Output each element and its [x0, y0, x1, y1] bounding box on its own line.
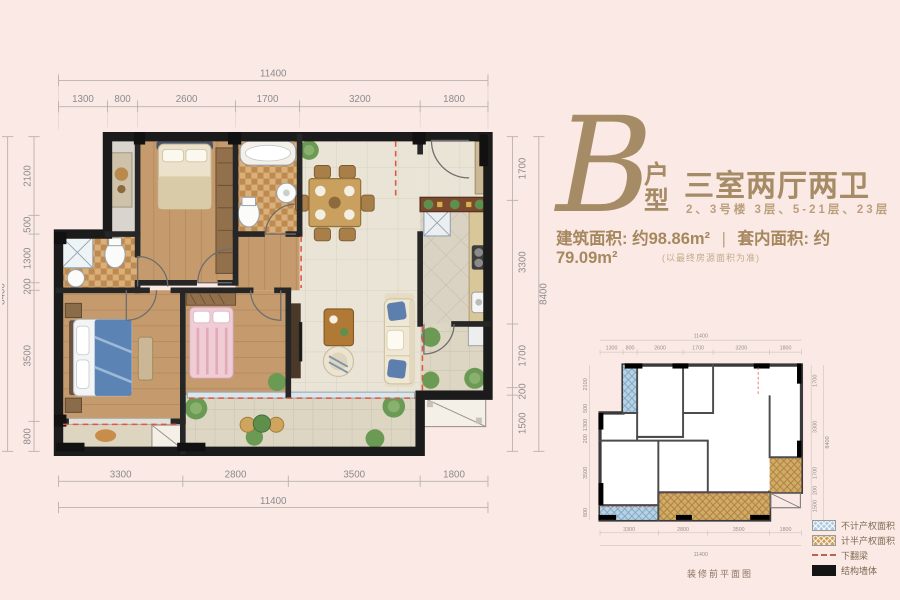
legend-label: 不计产权面积	[841, 519, 895, 532]
svg-text:1800: 1800	[780, 345, 792, 351]
legend-item: 不计产权面积	[812, 519, 898, 531]
blue-hatch-swatch	[812, 520, 836, 531]
inner-area-label: 套内面积:	[738, 230, 810, 248]
floor-plan-poster: 11400 1300 800 2600 1700 3200 1800 3300 …	[0, 0, 900, 600]
svg-text:200: 200	[813, 486, 819, 495]
dim-label: 11400	[260, 69, 287, 80]
dim-label: 1500	[518, 412, 529, 434]
dim-label: 3500	[23, 344, 34, 366]
mini-ac-platform	[771, 493, 801, 507]
room-corridor	[236, 234, 300, 290]
svg-text:1700: 1700	[692, 345, 704, 351]
legend-item: 计半产权面积	[812, 534, 898, 546]
dim-label: 200	[23, 278, 34, 295]
dim-label: 1700	[257, 94, 279, 105]
dim-label: 11400	[260, 496, 287, 507]
plan-type-label: 户型	[644, 162, 671, 215]
bedroom3-bed	[187, 293, 236, 378]
balcony-decor	[95, 429, 116, 442]
dim-label: 3200	[349, 94, 371, 105]
svg-text:1700: 1700	[813, 375, 819, 387]
svg-text:8400: 8400	[825, 436, 831, 448]
svg-text:11400: 11400	[694, 552, 708, 558]
mini-floor-plan: 11400 1300 800 2600 1700 3200 1800 3300 …	[570, 330, 835, 566]
svg-text:3300: 3300	[623, 527, 635, 533]
mini-plan-caption: 装修前平面图	[630, 567, 810, 580]
svg-text:800: 800	[583, 508, 589, 517]
legend-item: 结构墙体	[812, 564, 898, 576]
balcony-window-wall	[64, 418, 175, 424]
dim-label: 8400	[2, 283, 8, 305]
solid-black-swatch	[812, 565, 836, 576]
svg-text:3500: 3500	[583, 467, 589, 479]
plan-letter: B	[556, 100, 653, 232]
built-area-value: 约98.86m²	[632, 230, 710, 248]
legend-label: 计半产权面积	[841, 534, 895, 547]
dim-label: 800	[114, 94, 131, 105]
svg-text:500: 500	[583, 404, 589, 413]
svg-text:200: 200	[583, 434, 589, 443]
dim-label: 3300	[518, 251, 529, 273]
legend-label: 结构墙体	[841, 564, 877, 577]
svg-text:3500: 3500	[733, 527, 745, 533]
cloak-dresser	[111, 153, 132, 207]
dim-label: 1700	[518, 157, 529, 179]
balcony-sliding-door	[187, 392, 414, 398]
dim-label: 1300	[72, 94, 94, 105]
dim-label: 8400	[538, 283, 549, 305]
dim-label: 11400	[694, 333, 708, 339]
dim-label: 1300	[23, 247, 34, 269]
dim-label: 2100	[23, 165, 34, 187]
legend-label: 下翻梁	[841, 549, 868, 562]
svg-text:1700: 1700	[813, 467, 819, 479]
bedroom2-wardrobe	[216, 148, 234, 273]
svg-text:2600: 2600	[654, 345, 666, 351]
dim-label: 2600	[176, 94, 198, 105]
ac-platform-right	[422, 397, 485, 426]
legend-item: 下翻梁	[812, 549, 898, 561]
svg-text:2100: 2100	[583, 378, 589, 390]
svg-text:1500: 1500	[813, 500, 819, 512]
dim-label: 3300	[110, 470, 132, 481]
svg-text:1300: 1300	[606, 345, 618, 351]
bedroom2-bed	[156, 141, 213, 209]
legend: 不计产权面积 计半产权面积 下翻梁 结构墙体	[812, 519, 898, 579]
dim-label: 3500	[343, 470, 365, 481]
svg-text:1300: 1300	[583, 419, 589, 431]
svg-text:1800: 1800	[780, 527, 792, 533]
dim-label: 1800	[443, 94, 465, 105]
area-note: (以最终房源面积为准)	[556, 251, 866, 264]
building-floors-subtitle: 2、3号楼 3层、5-21层、23层	[686, 201, 890, 217]
dashed-line-swatch	[812, 554, 836, 556]
built-area-label: 建筑面积:	[556, 230, 628, 248]
dim-label: 800	[23, 428, 34, 445]
svg-text:2800: 2800	[677, 527, 689, 533]
dim-label: 1800	[443, 470, 465, 481]
dim-label: 500	[23, 216, 34, 233]
svg-text:3300: 3300	[813, 421, 819, 433]
plant	[268, 373, 286, 391]
svg-text:3200: 3200	[735, 345, 747, 351]
page-title: 三室两厅两卫	[684, 161, 870, 205]
area-divider: |	[722, 230, 726, 248]
main-floor-plan: 11400 1300 800 2600 1700 3200 1800 3300 …	[2, 58, 552, 530]
dim-label: 1700	[518, 344, 529, 366]
ac-platform-master-balcony	[152, 425, 181, 447]
brown-hatch-swatch	[812, 535, 836, 546]
plant	[304, 145, 315, 155]
dim-label: 2800	[225, 470, 247, 481]
svg-text:800: 800	[626, 345, 635, 351]
dim-label: 200	[518, 383, 529, 400]
